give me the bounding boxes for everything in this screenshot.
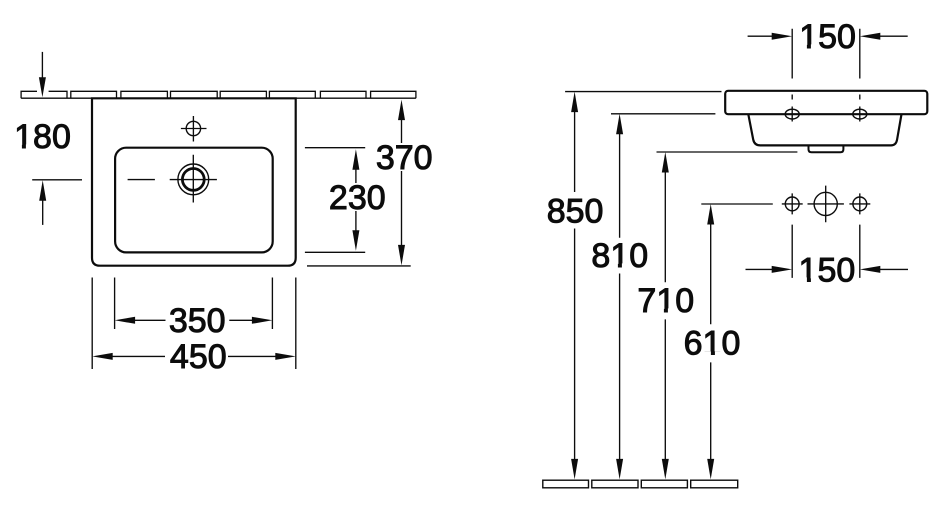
svg-text:350: 350 <box>169 302 226 340</box>
svg-text:180: 180 <box>14 118 71 156</box>
svg-text:370: 370 <box>376 139 433 177</box>
svg-text:150: 150 <box>799 251 856 289</box>
svg-text:850: 850 <box>547 193 604 231</box>
svg-text:450: 450 <box>170 338 227 376</box>
svg-text:710: 710 <box>637 282 694 320</box>
svg-text:150: 150 <box>799 18 856 56</box>
svg-text:230: 230 <box>329 179 386 217</box>
svg-text:810: 810 <box>591 237 648 275</box>
svg-text:610: 610 <box>684 325 741 363</box>
